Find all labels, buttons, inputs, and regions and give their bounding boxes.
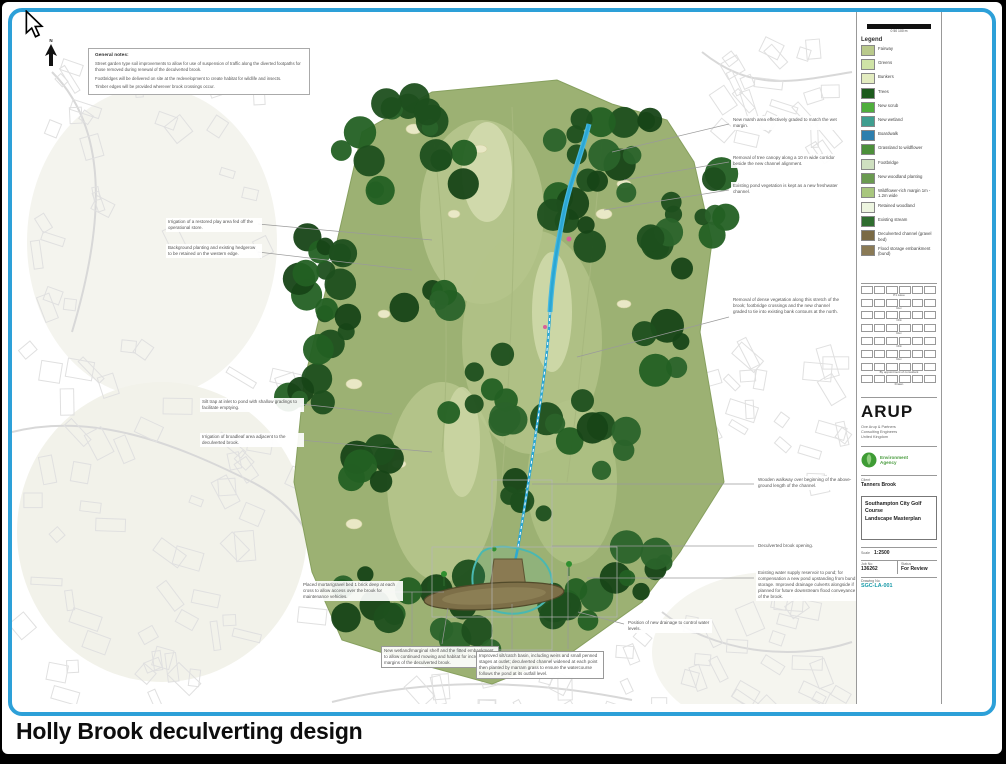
annotation-text: Existing pond vegetation is kept as a ne…: [733, 183, 838, 194]
annotation: Irrigation of broadleaf area adjacent to…: [200, 433, 304, 447]
legend-swatch: [861, 73, 875, 84]
legend-label: Trees: [878, 88, 889, 94]
legend-swatch: [861, 159, 875, 170]
annotation-layer: Irrigation of a restored play area fed o…: [12, 12, 984, 704]
legend-item: Grassland to wildflower: [861, 144, 937, 155]
annotation-text: Position of new drainage to control wate…: [628, 620, 709, 631]
legend-label: Deculverted channel (gravel bed): [878, 230, 937, 242]
legend-item: Trees: [861, 88, 937, 99]
revision-row: P1 issue: [861, 286, 937, 297]
scale-bar-caption: 0 50 100 m: [867, 29, 931, 33]
legend-label: Footbridge: [878, 159, 899, 165]
legend-item: Existing stream: [861, 216, 937, 227]
annotation-text: Deculverted brook opening.: [758, 543, 813, 548]
revision-caption: Chk: [861, 345, 937, 348]
legend-swatch: [861, 202, 875, 213]
legend-swatch: [861, 230, 875, 241]
firm-address: Ove Arup & PartnersConsulting EngineersU…: [861, 425, 937, 440]
legend-title-panel: 0 50 100 m Legend Fairway Greens Bu: [856, 12, 942, 704]
legend-title: Legend: [861, 37, 937, 43]
revision-caption: Rev: [861, 307, 937, 310]
legend-label: Wildflower-rich margin 1m - 1.2m wide: [878, 187, 937, 199]
legend-label: Retained woodland: [878, 202, 915, 208]
legend-swatch: [861, 45, 875, 56]
legend-label: Bunkers: [878, 73, 894, 79]
legend-swatch: [861, 130, 875, 141]
legend-swatch: [861, 144, 875, 155]
environment-agency-block: Environment Agency: [861, 446, 937, 468]
annotation-text: Removal of dense vegetation along this s…: [733, 297, 839, 314]
revision-caption: Rev: [861, 358, 937, 361]
legend-swatch: [861, 173, 875, 184]
annotation-text: Removal of tree canopy along a 10 m wide…: [733, 155, 835, 166]
annotation: Wooden walkway over beginning of the abo…: [756, 476, 860, 490]
annotation: Placed mortar/gravel bed 1 brick deep at…: [301, 581, 403, 601]
legend-swatch: [861, 59, 875, 70]
annotation: Background planting and existing hedgero…: [166, 244, 262, 258]
revision-row: Rev: [861, 299, 937, 310]
legend-label: Existing stream: [878, 216, 907, 222]
legend-label: Fairway: [878, 45, 893, 51]
legend-swatch: [861, 88, 875, 99]
revision-caption: By appointment of consultant: [861, 371, 937, 374]
revision-caption: P1 issue: [861, 294, 937, 297]
legend-item: Retained woodland: [861, 202, 937, 213]
status-field: Status For Review: [898, 561, 937, 574]
drawing-number-field: Drawing No SGC-LA-001: [861, 577, 937, 589]
revision-row: Rev: [861, 350, 937, 361]
legend-item: Wildflower-rich margin 1m - 1.2m wide: [861, 187, 937, 199]
annotation: New marsh area effectively graded to mat…: [731, 116, 845, 130]
annotation-text: Improved silt/catch basin, including wei…: [479, 653, 597, 676]
address-line: United Kingdom: [861, 435, 937, 440]
annotation: Deculverted brook opening.: [756, 542, 860, 550]
legend-label: New woodland planting: [878, 173, 922, 179]
legend-label: New scrub: [878, 102, 898, 108]
annotation: Removal of tree canopy along a 10 m wide…: [731, 154, 845, 168]
annotation-text: New marsh area effectively graded to mat…: [733, 117, 837, 128]
legend-item: Bunkers: [861, 73, 937, 84]
legend-items: Fairway Greens Bunkers Trees New: [861, 45, 937, 257]
revision-row: Chk: [861, 337, 937, 348]
annotation: Irrigation of a restored play area fed o…: [166, 218, 262, 232]
environment-agency-text: Environment Agency: [880, 455, 908, 466]
report-page: N General notes: Street garden type soil…: [2, 2, 1002, 754]
legend-item: Greens: [861, 59, 937, 70]
legend-label: Grassland to wildflower: [878, 144, 922, 150]
legend-item: New scrub: [861, 102, 937, 113]
legend-swatch: [861, 102, 875, 113]
legend-item: New wetland: [861, 116, 937, 127]
annotation: Removal of dense vegetation along this s…: [731, 296, 845, 316]
job-number-field: Job No 136262: [861, 561, 898, 574]
legend-item: Flood storage embankment (bund): [861, 245, 937, 257]
figure-caption: Holly Brook deculverting design: [16, 718, 363, 745]
legend-item: New woodland planting: [861, 173, 937, 184]
annotation-text: Placed mortar/gravel bed 1 brick deep at…: [303, 582, 395, 599]
client-field: Client Tanners Brook: [861, 475, 937, 488]
annotation: Silt trap at inlet to pond with shallow …: [200, 398, 304, 412]
map-area: N General notes: Street garden type soil…: [12, 12, 984, 704]
legend-item: Deculverted channel (gravel bed): [861, 230, 937, 242]
legend-label: Boardwalk: [878, 130, 898, 136]
annotation: Improved silt/catch basin, including wei…: [476, 651, 604, 679]
revision-row: Chk: [861, 311, 937, 322]
legend-label: New wetland: [878, 116, 903, 122]
revision-row: Drawn: [861, 375, 937, 386]
job-status-fields: Job No 136262 Status For Review: [861, 560, 937, 574]
revision-caption: Chk: [861, 319, 937, 322]
mouse-cursor-icon[interactable]: [24, 10, 44, 38]
scale-field: Scale 1:2500: [861, 547, 937, 556]
annotation-text: Existing water supply reservoir to pond;…: [758, 570, 855, 599]
revision-caption: Rev: [861, 332, 937, 335]
revision-table: P1 issue Rev Chk: [861, 283, 937, 387]
legend-swatch: [861, 116, 875, 127]
legend-item: Fairway: [861, 45, 937, 56]
annotation-text: Irrigation of a restored play area fed o…: [168, 219, 253, 230]
annotation: Existing pond vegetation is kept as a ne…: [731, 182, 845, 196]
legend-item: Boardwalk: [861, 130, 937, 141]
annotation-text: Silt trap at inlet to pond with shallow …: [202, 399, 297, 410]
drawing-title-box: Southampton City Golf Course Landscape M…: [861, 496, 937, 540]
scale-bar: 0 50 100 m: [867, 24, 935, 33]
annotation-text: Background planting and existing hedgero…: [168, 245, 255, 256]
annotation: Position of new drainage to control wate…: [626, 619, 712, 633]
legend-item: Footbridge: [861, 159, 937, 170]
revision-row: By appointment of consultant: [861, 363, 937, 374]
legend-swatch: [861, 216, 875, 227]
annotation-text: Irrigation of broadleaf area adjacent to…: [202, 434, 286, 445]
annotation-text: Wooden walkway over beginning of the abo…: [758, 477, 851, 488]
legend-swatch: [861, 245, 875, 256]
environment-agency-icon: [861, 452, 877, 468]
legend-label: Greens: [878, 59, 892, 65]
drawing-sheet: N General notes: Street garden type soil…: [8, 8, 996, 716]
legend-swatch: [861, 187, 875, 198]
revision-caption: Drawn: [861, 383, 937, 386]
legend-label: Flood storage embankment (bund): [878, 245, 937, 257]
arup-logo: ARUP: [861, 397, 937, 422]
revision-row: Rev: [861, 324, 937, 335]
annotation: Existing water supply reservoir to pond;…: [756, 569, 860, 601]
